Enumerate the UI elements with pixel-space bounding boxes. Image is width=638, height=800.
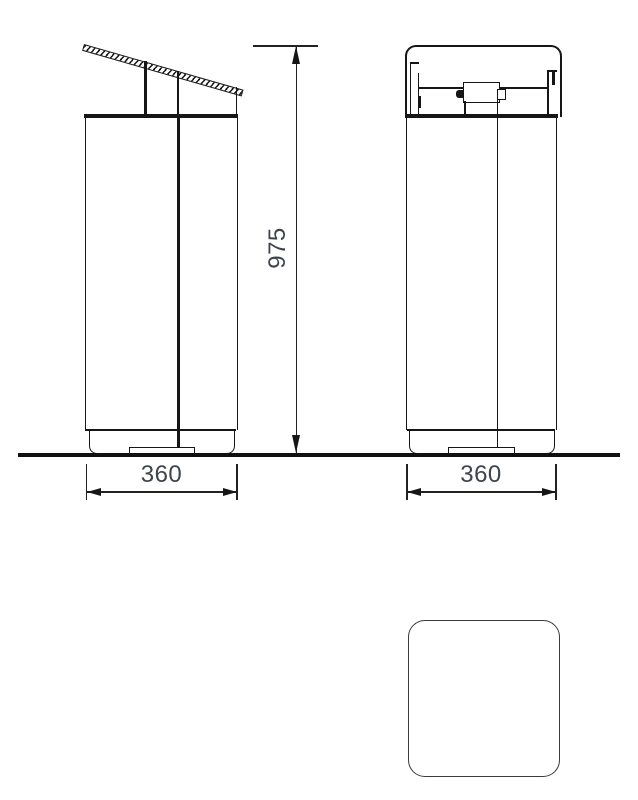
front-center-seam bbox=[497, 100, 499, 452]
dim-front-width-extension-right bbox=[555, 464, 557, 500]
hinge-pin-right bbox=[552, 72, 556, 85]
hinge-pin-left bbox=[418, 96, 422, 108]
hinge-post-right bbox=[547, 70, 549, 116]
lock-tab bbox=[497, 89, 506, 100]
dim-front-width-label: 360 bbox=[460, 463, 502, 487]
dim-front-width-line bbox=[407, 491, 556, 493]
dim-height-arrow-up bbox=[292, 46, 300, 64]
hinge-post-left-cap bbox=[410, 62, 419, 64]
dim-height-label: 975 bbox=[266, 227, 290, 269]
front-body bbox=[406, 118, 557, 430]
dim-height-extension-line bbox=[253, 45, 318, 47]
technical-drawing-canvas: 975 360 360 bbox=[0, 0, 638, 800]
dim-height-line bbox=[296, 46, 298, 453]
dim-height-arrow-down bbox=[292, 435, 300, 453]
lid-support-front bbox=[144, 61, 147, 116]
dim-side-width-label: 360 bbox=[141, 463, 183, 487]
dim-side-width-arrow-left bbox=[87, 488, 101, 496]
dim-side-width-arrow-right bbox=[223, 488, 237, 496]
dim-front-width-arrow-right bbox=[542, 488, 556, 496]
lock-knob bbox=[456, 90, 464, 98]
top-view bbox=[408, 620, 560, 777]
side-center-seam bbox=[177, 118, 180, 452]
lock-box bbox=[463, 82, 500, 103]
hinge-post-left-outer bbox=[410, 62, 412, 116]
lid-support-rear bbox=[236, 87, 238, 116]
lid-slab-hatched bbox=[82, 44, 243, 96]
dim-side-width-line bbox=[87, 491, 237, 493]
side-body bbox=[85, 118, 239, 430]
lid-support-mid bbox=[177, 71, 179, 116]
dim-front-width-arrow-left bbox=[407, 488, 421, 496]
ground-line bbox=[18, 453, 620, 458]
hinge-post-left-inner bbox=[418, 73, 420, 116]
